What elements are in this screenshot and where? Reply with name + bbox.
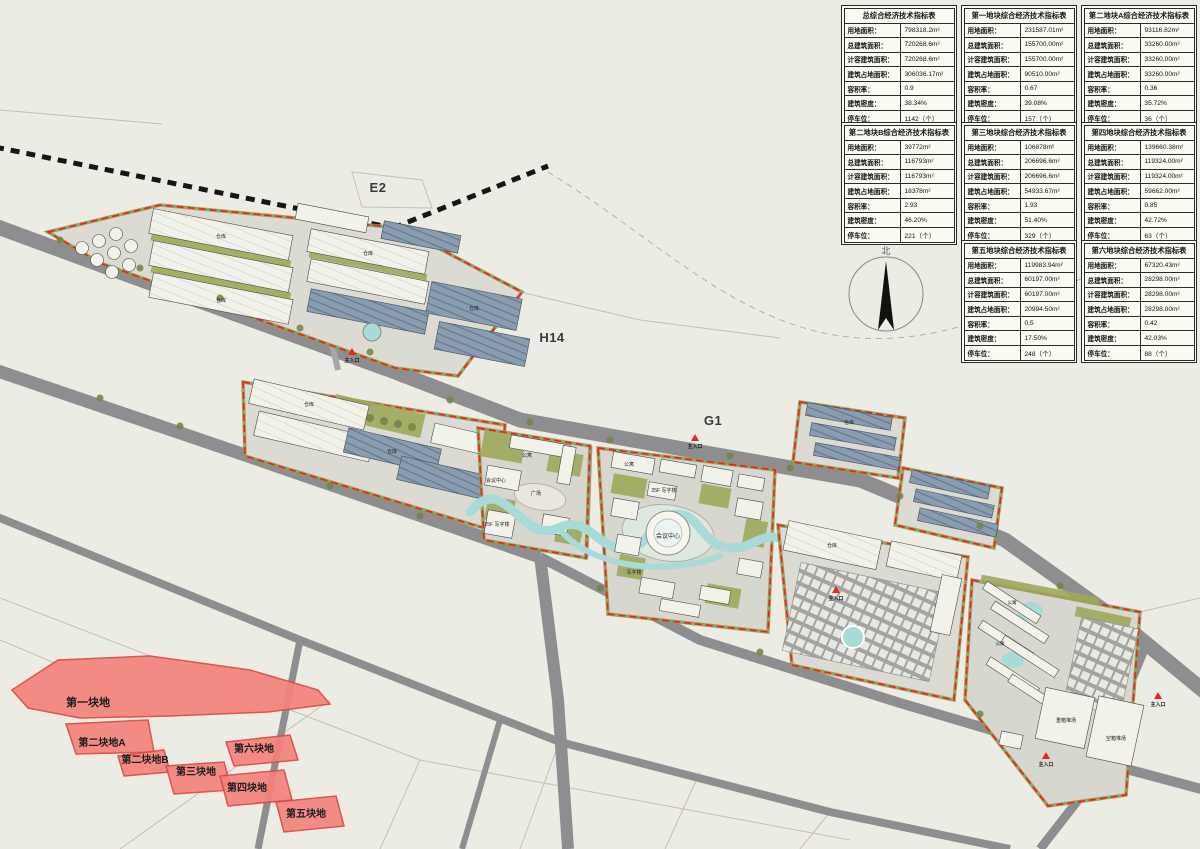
zone-label: H14: [539, 330, 565, 345]
zone-label: G1: [704, 413, 722, 428]
bldg-label: 重箱堆场: [1056, 717, 1076, 724]
entrance-label: 主入口: [1038, 761, 1053, 768]
bldg-label: 会议中心: [486, 477, 506, 484]
bldg-label: 仓库: [469, 305, 479, 312]
entrance-arrow-icon: [691, 434, 699, 441]
bldg-label: 25F 写字楼: [651, 487, 676, 494]
plot-name-label: 第一块地: [66, 695, 110, 709]
site-plan-canvas: 北 E2H14G1第一块地第二块地A第二块地B第三块地第六块地第四块地第五块地公…: [0, 0, 1200, 849]
plot-name-label: 第四块地: [227, 781, 267, 794]
master-plan-map: 北 E2H14G1第一块地第二块地A第二块地B第三块地第六块地第四块地第五块地公…: [0, 0, 1200, 849]
plot-name-label: 第六块地: [234, 742, 274, 755]
entrance-label: 主入口: [1150, 701, 1165, 708]
cluster-plot7-residential: [965, 575, 1144, 806]
entrance-arrow-icon: [1154, 692, 1162, 699]
plot-1-shape: [12, 656, 330, 718]
plot-name-label: 第二块地B: [121, 753, 168, 766]
bldg-label: 会议中心: [656, 532, 680, 540]
bldg-label: 25F 写字楼: [484, 521, 509, 528]
cluster-plot1-warehouses: [48, 203, 530, 376]
entrance-label: 主入口: [828, 595, 843, 602]
north-arrow: 北: [849, 246, 923, 331]
plot-name-label: 第二块地A: [78, 736, 125, 749]
bldg-label: 仓库: [844, 419, 854, 426]
entrance-label: 主入口: [687, 443, 702, 450]
plot-name-label: 第三块地: [176, 765, 216, 778]
bldg-label: 仓库: [304, 401, 314, 408]
bldg-label: 仓库: [387, 448, 397, 455]
bldg-label: 公寓: [624, 461, 634, 468]
bldg-label: 仓库: [216, 297, 226, 304]
bldg-label: 广场: [531, 490, 541, 497]
zone-label: E2: [370, 180, 387, 195]
bldg-label: 公寓: [1008, 599, 1017, 606]
bldg-label: 公寓: [522, 452, 532, 459]
bldg-label: 空箱堆场: [1106, 735, 1126, 742]
north-label: 北: [881, 246, 890, 256]
entrance-label: 主入口: [344, 357, 359, 364]
plot-name-label: 第五块地: [286, 807, 326, 820]
bldg-label: 仓库: [216, 233, 226, 240]
bldg-label: 仓库: [827, 542, 837, 549]
red-land-plots: [12, 656, 344, 832]
bldg-label: 写字楼: [626, 569, 641, 576]
bldg-label: 仓库: [363, 250, 373, 257]
bldg-label: 公寓: [996, 640, 1005, 647]
